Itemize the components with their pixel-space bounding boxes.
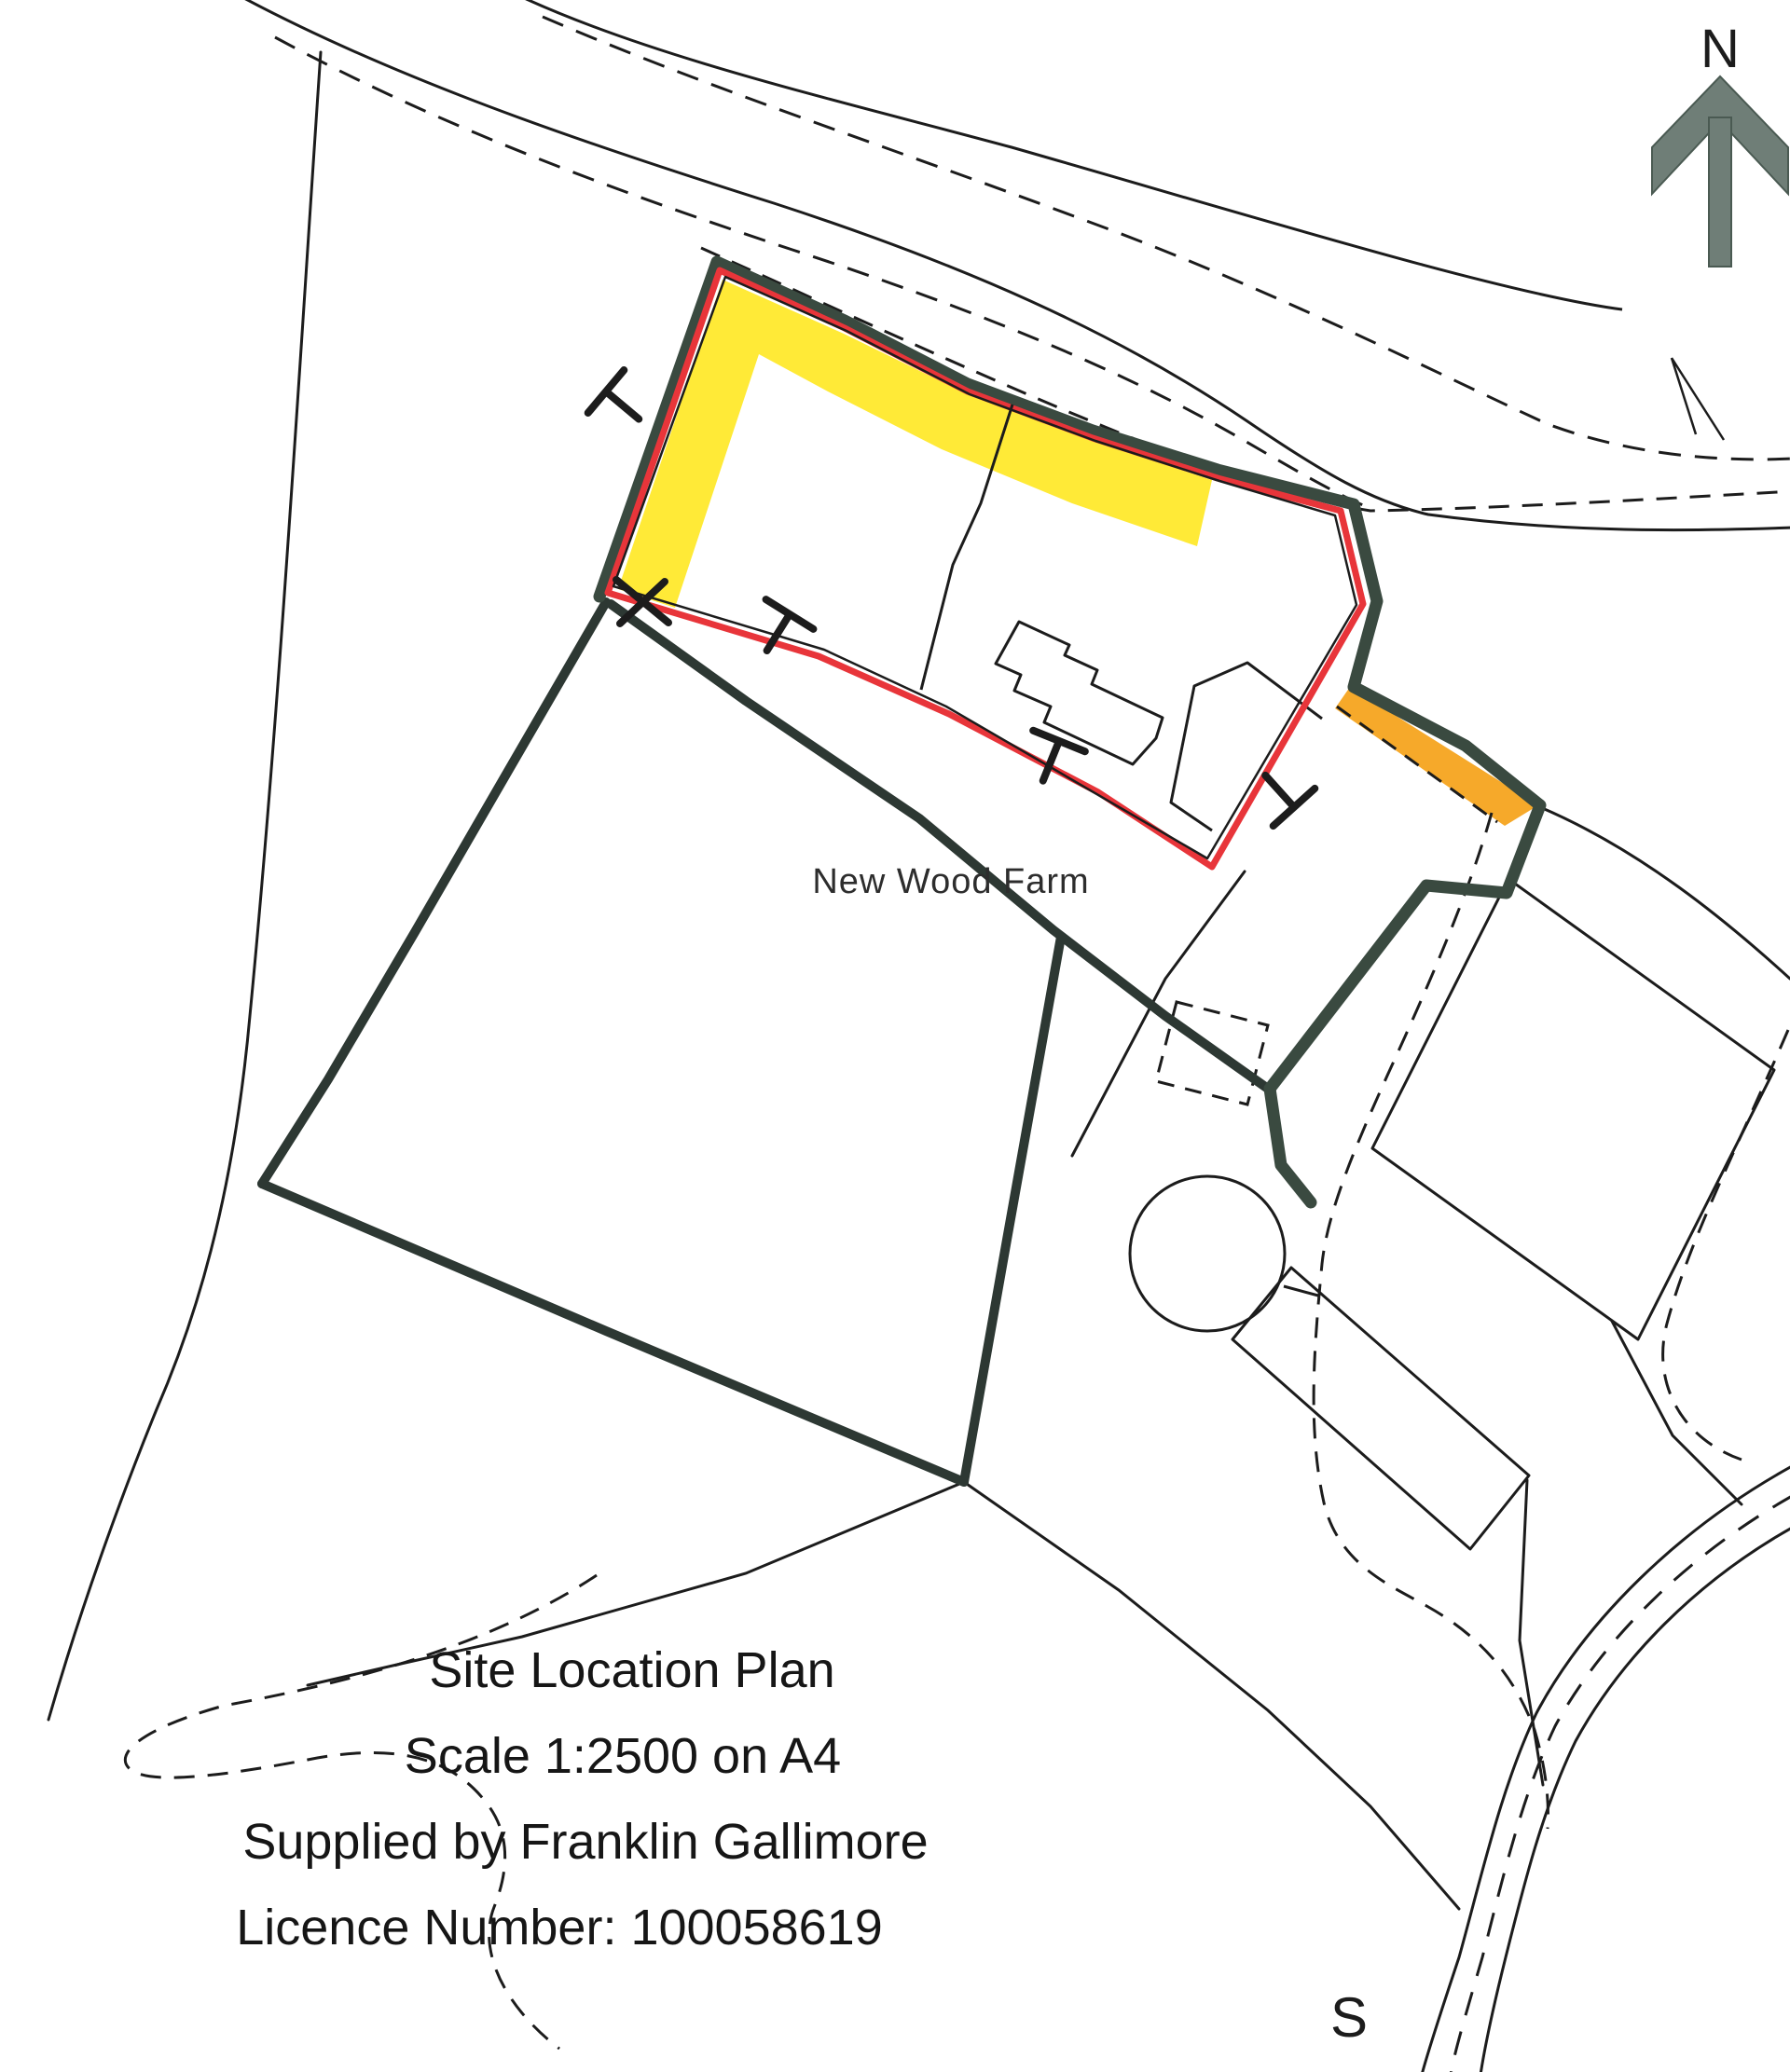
farm-label: New Wood Farm [812,862,1089,901]
pond-circle [1130,1176,1285,1331]
bottom-road [1422,1465,1790,2072]
title-line-2: Scale 1:2500 on A4 [405,1728,841,1784]
gate-marker-t-west-icon [588,370,657,441]
gate-marker-t-south1-icon [743,599,813,666]
north-arrow-shaft [1709,117,1731,267]
parcel-west-edge [262,602,606,1184]
field-line-from-parcel-corner-right [964,1482,1459,1909]
fence-shed-to-road [1520,1480,1543,1785]
bottom-road-center-dashed [1451,1495,1790,2072]
buildings [996,622,1774,1549]
parcel-northeast-edge [964,937,1061,1482]
north-label: N [1700,19,1740,79]
north-arrow-icon [1652,76,1788,267]
west-field-line [48,52,321,1720]
road-junction-spur [1672,358,1724,440]
title-line-4: Licence Number: 100058619 [236,1900,882,1955]
title-line-3: Supplied by Franklin Gallimore [242,1814,928,1870]
orange-highlight-band [1335,687,1538,826]
long-shed [1232,1268,1529,1549]
hedge-line-through-farm [611,604,1268,1089]
title-block: Site Location Plan Scale 1:2500 on A4 Su… [236,1642,928,1955]
farmhouse-building [996,622,1163,764]
large-barn [1372,879,1774,1339]
parcel-south-edge [262,1184,964,1482]
bottom-road-left-edge [1422,1465,1790,2072]
site-location-plan: N New Wood Farm S Site Location Plan Sca… [0,0,1790,2072]
south-road-label: S [1330,1986,1368,2049]
road-dashed-verge [275,37,1363,505]
title-line-1: Site Location Plan [429,1642,834,1698]
road-upper-edge [520,0,1622,309]
green-boundary-stub [1270,1089,1311,1202]
